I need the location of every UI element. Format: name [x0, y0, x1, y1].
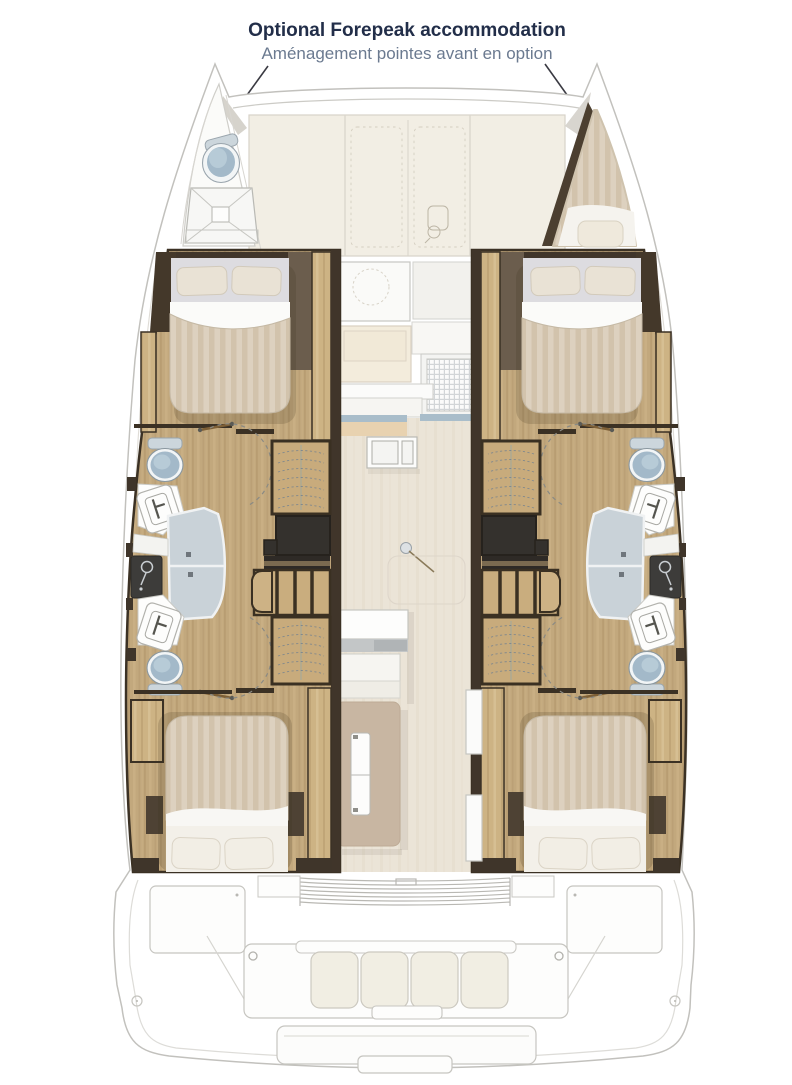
svg-text:Optional Forepeak accommodatio: Optional Forepeak accommodation [248, 20, 566, 41]
svg-text:Aménagement pointes avant en o: Aménagement pointes avant en option [261, 44, 552, 63]
